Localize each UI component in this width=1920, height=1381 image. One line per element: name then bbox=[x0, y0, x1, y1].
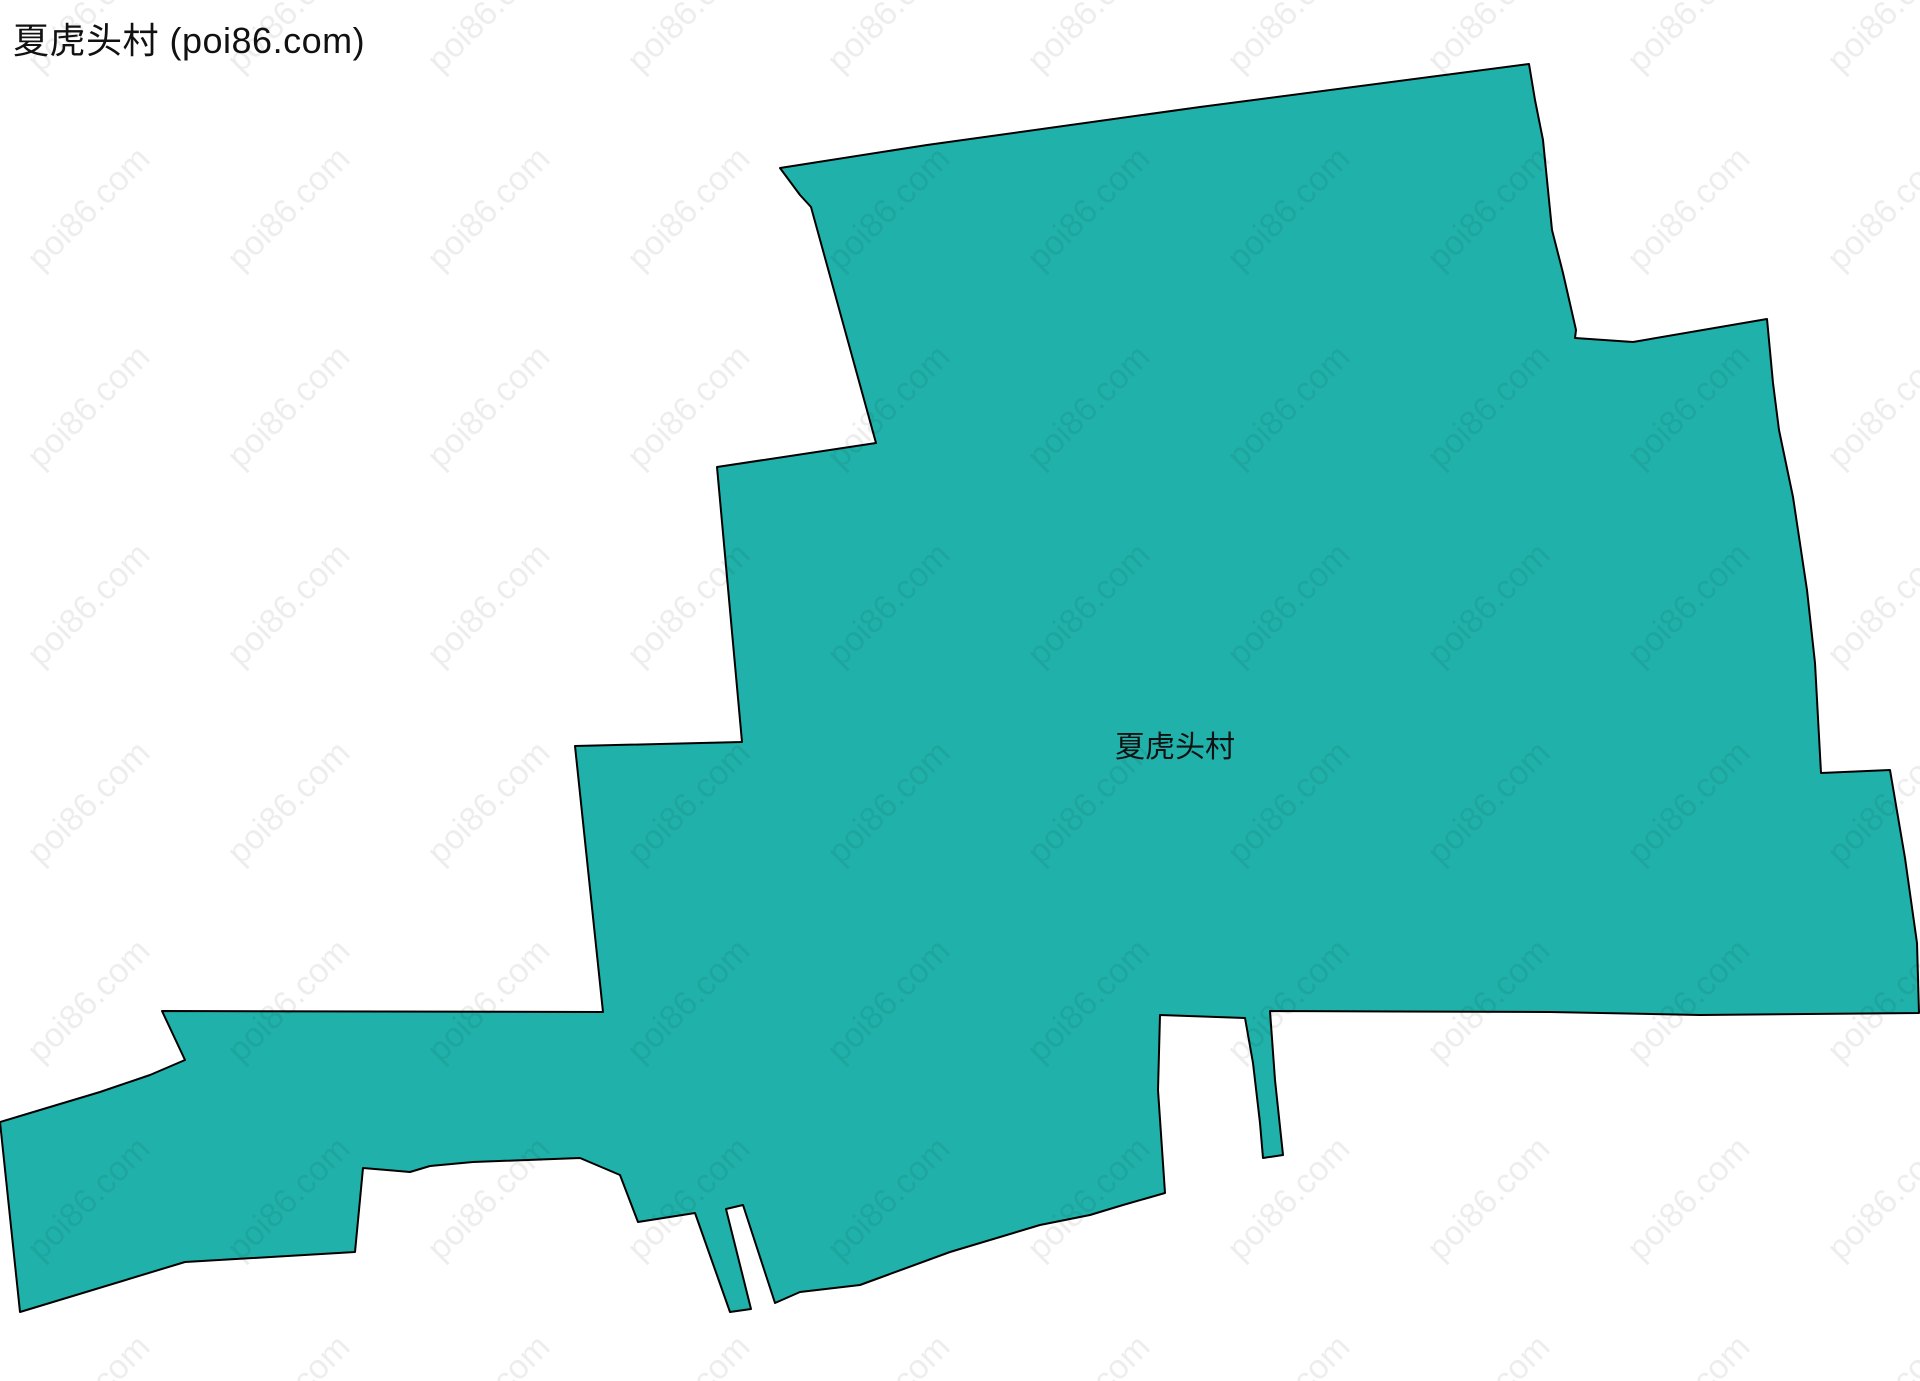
map-image: poi86.compoi86.compoi86.compoi86.compoi8… bbox=[0, 0, 1920, 1381]
map-canvas: poi86.compoi86.compoi86.compoi86.compoi8… bbox=[0, 0, 1920, 1381]
region-label: 夏虎头村 bbox=[1115, 722, 1235, 766]
page-title: 夏虎头村 (poi86.com) bbox=[13, 12, 365, 64]
